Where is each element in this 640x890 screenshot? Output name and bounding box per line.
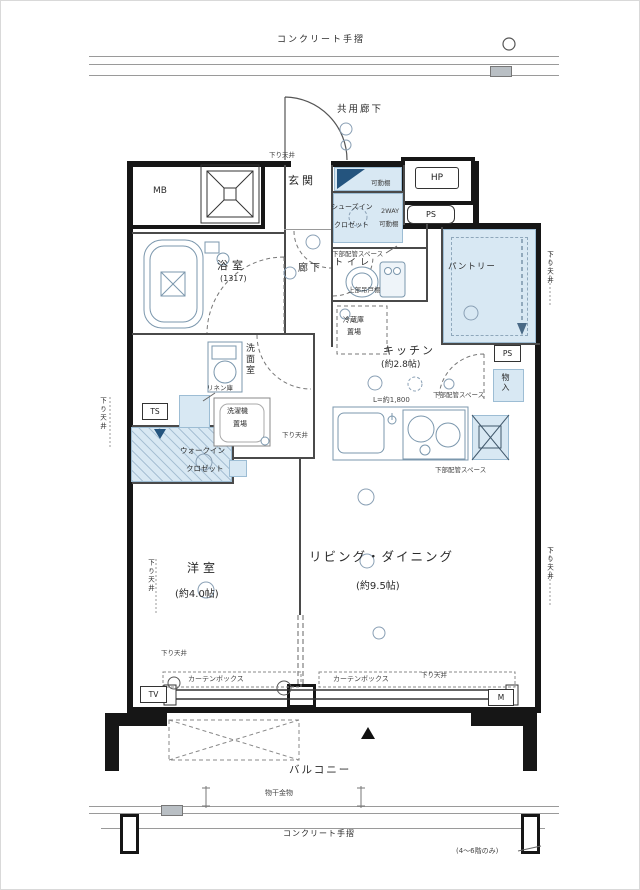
pipe-space-label: 下部配管スペース [433,392,484,399]
linen-leader [203,393,215,401]
floor-plan-page: コンクリート手摺 共用廊下 コンクリート手摺 (4〜6階のみ) [0,0,640,890]
living-label: リビング・ダイニング [309,551,454,564]
bathroom-label: 浴室 [217,260,247,271]
window-sash [164,685,518,705]
ts-label: TS [150,407,159,416]
counter-length-label: L=約1,800 [373,397,410,404]
two-way-label: 2WAY [381,208,399,215]
storage-label: 物入 [501,373,509,393]
laundry-label-2: 置場 [233,421,247,428]
ts-tag: TS [142,403,168,420]
shelf-corner-navy [337,169,365,189]
bedroom-size-label: (約4.0帖) [175,590,219,600]
fixtures-overlay [1,1,640,890]
pipe-space-label: 下部配管スペース [332,251,383,258]
hp-label: HP [431,173,443,183]
kitchen-counter [333,407,468,460]
bedroom-label: 洋室 [187,562,219,574]
note-leader [518,846,541,851]
light-icon [340,123,352,135]
lowered-ceiling-label: 下り天井 [546,547,553,581]
wic-label-2: クロゼット [186,465,224,473]
ps-tag-kitchen: PS [494,345,521,362]
fridge-label-1: 冷蔵庫 [343,317,364,324]
duct-shaft-icon [472,415,509,460]
sic-label-1: シューズイン [331,204,373,211]
washroom-door-arc [257,335,311,389]
curtain-box-label: カーテンボックス [333,676,389,683]
hp-tag: HP [415,167,459,189]
kitchen-label: キッチン [383,345,435,356]
balcony-hatch [169,720,299,760]
sash-handle-icon [277,681,291,695]
lowered-ceiling-label: 下り天井 [161,650,187,657]
m-label: M [498,693,504,702]
lowered-ceiling-label: 下り天井 [282,432,308,439]
balcony-triangle-mark [361,727,375,739]
washroom-label: 洗面室 [244,343,253,376]
laundry-label-1: 洗濯機 [227,408,248,415]
bathroom-size-label: (1317) [220,275,247,283]
pipe-space-label: 下部配管スペース [435,467,486,474]
ps-label: PS [426,210,436,219]
corridor-label: 廊下 [298,264,322,274]
wic-triangle-mark [154,429,166,439]
toilet-label: トイレ [334,259,373,268]
kitchen-size-label: (約2.8帖) [381,361,420,370]
balcony-label: バルコニー [289,765,351,776]
upper-cabinet-label: 上部吊戸棚 [348,287,381,294]
living-size-label: (約9.5帖) [356,582,400,592]
fridge-label-2: 置場 [347,329,361,336]
sic-label-2: クロゼット [334,222,369,229]
entrance-label: 玄関 [288,175,316,186]
lowered-ceiling-label: 下り天井 [269,152,295,159]
pipe-leader [386,246,397,253]
corridor-circle-icon [503,38,515,50]
mb-hatch-icon [201,165,259,223]
tv-label: TV [149,690,159,699]
wic-label-1: ウォークイン [180,447,225,455]
bathtub [144,240,229,328]
curtain-box-label: カーテンボックス [188,676,244,683]
pantry-label: パントリー [448,263,496,272]
pantry-arrow-head [517,323,527,335]
ps-label: PS [503,349,512,358]
movable-shelf-label: 可動棚 [371,180,391,187]
lowered-ceiling-label: 下り天井 [99,397,106,431]
ps-tag-top: PS [407,205,455,224]
linen-label: リネン庫 [207,385,233,392]
lowered-ceiling-label: 下り天井 [421,672,447,679]
lowered-ceiling-label: 下り天井 [147,559,154,593]
laundry-fitting-label: 物干金物 [265,790,293,797]
mb-label: MB [153,187,167,196]
fridge-space [337,306,387,354]
m-tag: M [488,689,514,706]
movable-shelf-label: 可動棚 [379,221,399,228]
tv-tag: TV [140,686,167,703]
lowered-ceiling-label: 下り天井 [546,251,553,285]
